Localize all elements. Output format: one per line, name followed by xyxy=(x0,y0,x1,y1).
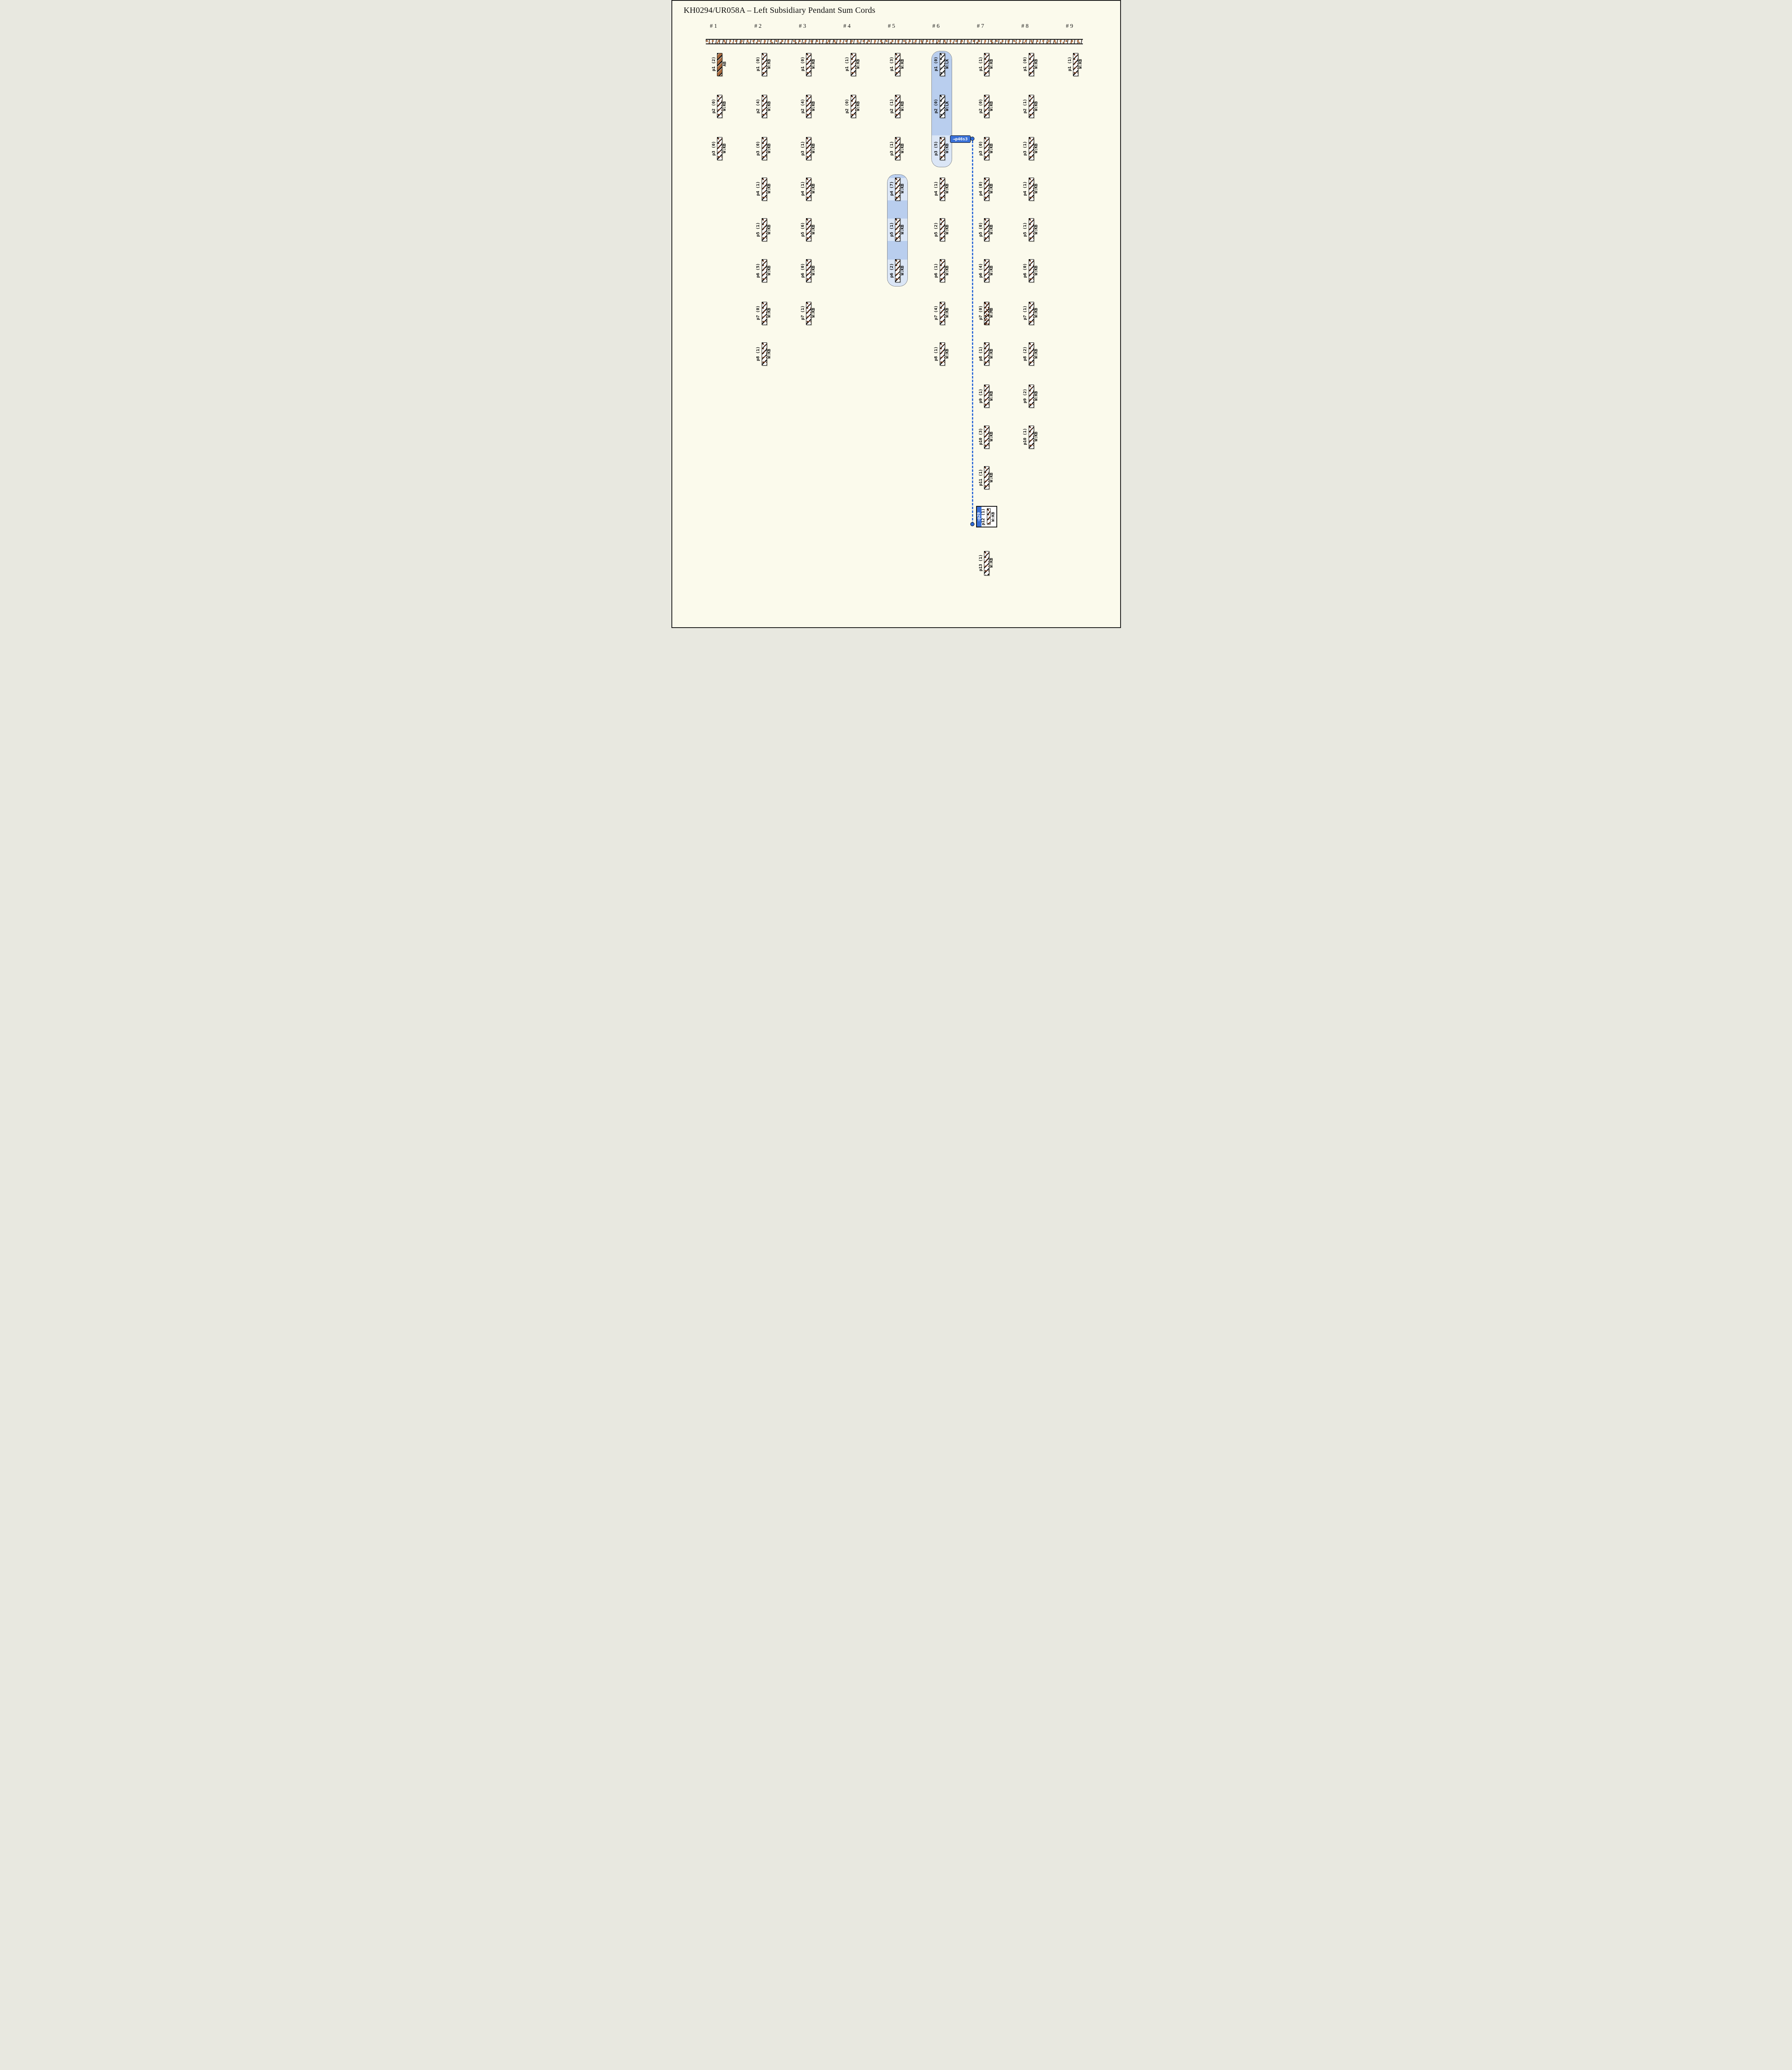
pendant-id-label-text: p8 (1) xyxy=(979,347,983,361)
pendant-color-label: W:KB xyxy=(989,463,995,492)
pendant-id-label: p4 (0) xyxy=(978,174,984,203)
pendant-color-label: W:KB xyxy=(856,50,861,79)
pendant-color-label: W:KB xyxy=(767,215,772,244)
pendant-color-label-text: W:LK xyxy=(945,101,950,111)
pendant-color-label: W:KB xyxy=(989,215,995,244)
pendant-color-label-text: W:KB xyxy=(1034,184,1039,193)
pendant-color-label-text: W:KB xyxy=(990,184,994,193)
pendant-color-label-text: W:KB xyxy=(1034,59,1039,69)
pendant-color-label: W:KB xyxy=(1078,50,1084,79)
pendant-id-label-text: p1 (0) xyxy=(756,57,760,71)
pendant-color-label-text: W:LK xyxy=(945,59,950,69)
pendant-color-label-text: W:KB xyxy=(812,184,816,193)
pendant-color-label-text: W:KB xyxy=(901,59,905,69)
pendant-color-label: W:KB xyxy=(989,549,995,578)
pendant-color-label: W:KB xyxy=(945,339,950,368)
pendant-color-label-text: W:KB xyxy=(812,265,816,275)
pendant-id-label-text: p8 (2) xyxy=(1023,347,1027,361)
pendant-color-label-text: W:KB xyxy=(1079,59,1083,69)
pendant-color-label-text: W:KB xyxy=(1034,265,1039,275)
pendant-color-label-text: W:KB xyxy=(991,512,996,521)
pendant-id-label-text: p4 (0) xyxy=(979,181,983,196)
pendant-color-label: W:KB xyxy=(1034,215,1039,244)
pendant-id-label-text: p6 (1) xyxy=(934,263,938,278)
pendant-id-label-text: p1 (1) xyxy=(1068,57,1072,71)
pendant-color-label-text: W:KB xyxy=(945,184,950,193)
pendant-color-label: W:KB xyxy=(945,215,950,244)
pendant-id-label: p1 (0) xyxy=(933,50,939,79)
pendant-id-label: p2 (1) xyxy=(889,91,895,120)
pendant-color-label-text: W:KB xyxy=(990,143,994,153)
group-header-4: # 4 xyxy=(843,23,851,30)
pendant-id-label-text: p2 (1) xyxy=(1023,99,1027,113)
pendant-id-label: p6 (0) xyxy=(800,256,806,285)
pendant-id-label: p4 (1) xyxy=(933,174,939,203)
pendant-id-label: p7 (4) xyxy=(933,298,939,327)
pendant-color-label: W:KB xyxy=(1034,381,1039,410)
pendant-color-label: W:KB xyxy=(1034,422,1039,451)
group-header-6: # 6 xyxy=(932,23,940,30)
pendant-id-label: p3 (1) xyxy=(800,134,806,163)
pendant-color-label-text: W:KB xyxy=(990,349,994,358)
pendant-color-label-text: W:KB xyxy=(723,101,727,111)
pendant-color-label: W:LK xyxy=(945,91,950,120)
pendant-color-label-text: W:KB xyxy=(767,308,772,318)
pendant-color-label: W:KB xyxy=(767,256,772,285)
pendant-color-label: W:KB xyxy=(945,256,950,285)
pendant-color-label: W:LK xyxy=(945,50,950,79)
pendant-id-label-text: p10 (3) xyxy=(979,428,983,445)
pendant-color-label-text: W:KB xyxy=(990,224,994,234)
pendant-id-label: p5 (1) xyxy=(889,215,895,244)
pendant-id-label: p8 (2) xyxy=(1022,339,1028,368)
pendant-color-label-text: W:KB xyxy=(990,558,994,568)
pendant-color-label: W:KB xyxy=(1034,298,1039,327)
group-header-1: # 1 xyxy=(710,23,717,30)
pendant-id-label: p4 (1) xyxy=(1022,174,1028,203)
pendant-cord xyxy=(987,508,991,525)
pendant-id-label: p3 (1) xyxy=(889,134,895,163)
pendant-id-label: p10 (1) xyxy=(1022,422,1028,451)
pendant-id-label: p1 (3) xyxy=(889,50,895,79)
pendant-color-label: W:KB xyxy=(767,91,772,120)
pendant-id-label-text: p5 (1) xyxy=(1023,222,1027,237)
pendant-id-label: p9 (2) xyxy=(1022,381,1028,410)
pendant-id-label: p2 (1) xyxy=(1022,91,1028,120)
pendant-color-label: W:KB xyxy=(900,256,906,285)
pendant-id-label: p2 (0) xyxy=(844,91,850,120)
pendant-color-label: W:KB xyxy=(767,134,772,163)
pendant-id-label-text: p13 (1) xyxy=(979,554,983,571)
pendant-id-label: p7 (0) xyxy=(755,298,761,327)
pendant-id-label: p4 (7) xyxy=(889,174,895,203)
pendant-id-label: p1 (0) xyxy=(1022,50,1028,79)
pendant-id-label: p7 (0) xyxy=(978,298,984,327)
pendant-id-label-text: p3 (0) xyxy=(756,141,760,156)
pendant-color-label: W:KB xyxy=(945,134,950,163)
pendant-id-label-text: p7 (1) xyxy=(1023,306,1027,320)
pendant-color-label-text: W:KB xyxy=(990,472,994,482)
pendant-id-label-text: p1 (3) xyxy=(890,57,894,71)
pendant-id-label-text: p5 (0) xyxy=(979,222,983,237)
pendant-color-label: W:KB xyxy=(900,50,906,79)
pendant-id-label: p8 (1) xyxy=(755,339,761,368)
pendant-color-label: W:KB xyxy=(989,91,995,120)
pendant-color-label: W:KB xyxy=(989,134,995,163)
pendant-id-label-text: p7 (1) xyxy=(801,306,805,320)
group-header-5: # 5 xyxy=(888,23,895,30)
pendant-color-label-text: W:KB xyxy=(1034,101,1039,111)
pendant-id-label-text: p6 (0) xyxy=(1023,263,1027,278)
pendant-id-label-text: p1 (0) xyxy=(801,57,805,71)
pendant-color-label: W:KB xyxy=(989,381,995,410)
pendant-color-label-text: W:KB xyxy=(767,265,772,275)
pendant-color-label: W:KB xyxy=(722,91,728,120)
pendant-color-label-text: W:KB xyxy=(901,265,905,275)
pendant-id-label-text: p9 (2) xyxy=(1023,389,1027,403)
pendant-color-label-text: W:KB xyxy=(1034,143,1039,153)
pendant-color-label: W:KB xyxy=(989,422,995,451)
pendant-color-label: W:KB xyxy=(811,256,817,285)
pendant-color-label-text: W:KB xyxy=(1034,349,1039,358)
pendant-id-label: p5 (2) xyxy=(933,215,939,244)
pendant-id-label-text: p2 (0) xyxy=(712,99,716,113)
group-header-8: # 8 xyxy=(1021,23,1029,30)
pendant-id-label: p9 (1) xyxy=(978,381,984,410)
pendant-id-label: p6 (4) xyxy=(978,256,984,285)
pendant-color-label-text: W:KB xyxy=(812,143,816,153)
pendant-color-label: W:KB xyxy=(811,50,817,79)
pendant-id-label: p3 (5) xyxy=(933,134,939,163)
pendant-id-label-text: p1 (1) xyxy=(845,57,849,71)
pendant-id-label-text: p7 (4) xyxy=(934,306,938,320)
pendant-color-label-text: W:KB xyxy=(901,224,905,234)
pendant-id-label-text: p1 (0) xyxy=(934,57,938,71)
pendant-color-label-text: W:KB xyxy=(901,184,905,193)
link-label-p46s3: →p46s3 xyxy=(950,135,971,143)
pendant-color-label: W:MB xyxy=(989,298,995,327)
pendant-id-label-text: p5 (1) xyxy=(890,222,894,237)
pendant-color-label: W:KB xyxy=(900,91,906,120)
pendant-id-label: p2 (0) xyxy=(978,91,984,120)
pendant-id-label-text: p3 (0) xyxy=(979,141,983,156)
pendant-color-label-text: W:KB xyxy=(945,143,950,153)
pendant-id-label: p2 (0) xyxy=(711,91,717,120)
pendant-color-label: W:KB xyxy=(811,298,817,327)
pendant-id-label-text: p6 (2) xyxy=(890,263,894,278)
pendant-id-label: p8 (1) xyxy=(978,339,984,368)
pendant-id-label-text: p2 (1) xyxy=(890,99,894,113)
pendant-color-label-text: W:KB xyxy=(990,432,994,441)
pendant-color-label-text: W:KB xyxy=(856,59,861,69)
pendant-id-label-text: p5 (2) xyxy=(934,222,938,237)
pendant-color-label-text: W:KB xyxy=(1034,308,1039,318)
pendant-id-label: p3 (0) xyxy=(755,134,761,163)
pendant-id-label-text: p7 (0) xyxy=(756,306,760,320)
pendant-color-label-text: W:KB xyxy=(812,224,816,234)
pendant-id-label-text: p8 (1) xyxy=(756,347,760,361)
pendant-id-label: p3 (0) xyxy=(978,134,984,163)
pendant-id-label-text: p4 (1) xyxy=(756,181,760,196)
pendant-id-label-text: p4 (1) xyxy=(1023,181,1027,196)
pendant-id-label-text: p2 (4) xyxy=(756,99,760,113)
pendant-id-label: p5 (1) xyxy=(1022,215,1028,244)
group-header-3: # 3 xyxy=(799,23,806,30)
pendant-id-label: p6 (1) xyxy=(933,256,939,285)
pendant-color-label: W:KB xyxy=(811,134,817,163)
pendant-id-label-text: p4 (1) xyxy=(934,181,938,196)
pendant-color-label: W:KB xyxy=(1034,134,1039,163)
connector-line xyxy=(972,141,973,524)
pendant-color-label: W:KB xyxy=(767,174,772,203)
pendant-id-label-text: p6 (4) xyxy=(979,263,983,278)
pendant-id-label: p4 (1) xyxy=(800,174,806,203)
pendant-color-label: W:KB xyxy=(989,339,995,368)
pendant-color-label: W:KB xyxy=(989,50,995,79)
pendant-color-label-text: W:KB xyxy=(945,308,950,318)
pendant-id-label: p3 (0) xyxy=(711,134,717,163)
pendant-id-label: p8 (1) xyxy=(933,339,939,368)
pendant-id-label: p1 (1) xyxy=(978,50,984,79)
pendant-color-label-text: W:KB xyxy=(723,143,727,153)
pendant-color-label-text: W:KB xyxy=(945,349,950,358)
pendant-id-label-text: p6 (0) xyxy=(801,263,805,278)
pendant-box-p12: →p29p12 (1)W:KB xyxy=(976,506,997,527)
pendant-color-label: W:KB xyxy=(900,174,906,203)
pendant-id-label: p2 (4) xyxy=(755,91,761,120)
khipu-diagram-page: KH0294/UR058A – Left Subsidiary Pendant … xyxy=(671,0,1121,628)
pendant-color-label: AB xyxy=(722,50,728,79)
pendant-id-label-text: p9 (1) xyxy=(979,389,983,403)
pendant-color-label: W:KB xyxy=(767,339,772,368)
pendant-color-label-text: W:KB xyxy=(945,265,950,275)
pendant-id-label-text: p3 (5) xyxy=(934,141,938,156)
pendant-color-label-text: W:KB xyxy=(812,59,816,69)
pendant-id-label-text: p1 (0) xyxy=(1023,57,1027,71)
pendant-color-label: W:KB xyxy=(1034,50,1039,79)
pendant-color-label: W:KB xyxy=(1034,91,1039,120)
pendant-color-label-text: W:KB xyxy=(990,59,994,69)
pendant-color-label: W:KB xyxy=(722,134,728,163)
pendant-id-label: p3 (1) xyxy=(1022,134,1028,163)
pendant-id-label-text: p2 (4) xyxy=(801,99,805,113)
pendant-color-label-text: W:KB xyxy=(767,59,772,69)
pendant-id-label: p1 (0) xyxy=(800,50,806,79)
pendant-color-label-text: W:KB xyxy=(945,224,950,234)
pendant-color-label-text: W:KB xyxy=(767,101,772,111)
pendant-color-label-text: W:KB xyxy=(812,308,816,318)
pendant-id-label: p6 (2) xyxy=(889,256,895,285)
pendant-color-label: W:KB xyxy=(811,91,817,120)
pendant-color-label-text: W:KB xyxy=(767,143,772,153)
pendant-id-label-text: p1 (2) xyxy=(712,57,716,71)
pendant-color-label-text: AB xyxy=(723,62,727,67)
main-cord xyxy=(706,39,1083,44)
pendant-color-label-text: W:KB xyxy=(767,184,772,193)
pendant-id-label: p1 (1) xyxy=(1067,50,1073,79)
pendant-id-label-text: p2 (0) xyxy=(845,99,849,113)
pendant-id-label: p6 (0) xyxy=(1022,256,1028,285)
pendant-id-label: p2 (0) xyxy=(933,91,939,120)
pendant-color-label: W:KB xyxy=(989,256,995,285)
pendant-id-label: p1 (1) xyxy=(844,50,850,79)
page-title: KH0294/UR058A – Left Subsidiary Pendant … xyxy=(684,6,876,15)
pendant-color-label-text: W:KB xyxy=(990,391,994,400)
pendant-id-label: p1 (0) xyxy=(755,50,761,79)
pendant-color-label-text: W:KB xyxy=(856,101,861,111)
group-header-9: # 9 xyxy=(1066,23,1073,30)
pendant-color-label-text: W:KB xyxy=(1034,432,1039,441)
pendant-id-label-text: p8 (1) xyxy=(934,347,938,361)
pendant-id-label: p5 (6) xyxy=(800,215,806,244)
pendant-color-label: W:KB xyxy=(1034,174,1039,203)
pendant-id-label-text: p6 (5) xyxy=(756,263,760,278)
connector-node-bottom xyxy=(970,522,974,526)
pendant-id-label: p1 (2) xyxy=(711,50,717,79)
pendant-color-label-text: W:KB xyxy=(1034,224,1039,234)
pendant-id-label: p5 (0) xyxy=(978,215,984,244)
pendant-color-label-text: W:KB xyxy=(1034,391,1039,400)
pendant-color-label: W:KB xyxy=(900,215,906,244)
pendant-id-label-text: p3 (1) xyxy=(890,141,894,156)
pendant-id-label: p4 (1) xyxy=(755,174,761,203)
pendant-id-label-text: p3 (1) xyxy=(1023,141,1027,156)
pendant-id-label-text: p11 (1) xyxy=(979,469,983,486)
pendant-color-label-text: W:KB xyxy=(767,224,772,234)
pendant-id-label: p2 (4) xyxy=(800,91,806,120)
pendant-id-label: p10 (3) xyxy=(978,422,984,451)
pendant-id-label-text: p1 (1) xyxy=(979,57,983,71)
pendant-id-label-text: p2 (0) xyxy=(979,99,983,113)
pendant-id-label: p7 (1) xyxy=(800,298,806,327)
pendant-color-label-text: W:KB xyxy=(901,143,905,153)
pendant-color-label: W:KB xyxy=(900,134,906,163)
pendant-id-label-text: p12 (1) xyxy=(981,508,986,525)
pendant-id-label: p11 (1) xyxy=(978,463,984,492)
pendant-color-label: W:KB xyxy=(991,508,996,526)
pendant-id-label-text: p5 (6) xyxy=(801,222,805,237)
pendant-color-label: W:KB xyxy=(856,91,861,120)
pendant-id-label-text: p4 (1) xyxy=(801,181,805,196)
pendant-color-label: W:KB xyxy=(767,50,772,79)
group-header-7: # 7 xyxy=(977,23,984,30)
pendant-id-label-text: p4 (7) xyxy=(890,181,894,196)
pendant-id-label: p7 (1) xyxy=(1022,298,1028,327)
pendant-id-label-text: p2 (0) xyxy=(934,99,938,113)
pendant-color-label: W:KB xyxy=(767,298,772,327)
pendant-color-label-text: W:MB xyxy=(990,308,994,318)
pendant-id-label-text: p10 (1) xyxy=(1023,428,1027,445)
pendant-id-label-text: p5 (1) xyxy=(756,222,760,237)
connector-node-top xyxy=(970,137,974,141)
group-header-2: # 2 xyxy=(754,23,762,30)
pendant-id-label: p12 (1) xyxy=(981,508,986,526)
pendant-color-label: W:KB xyxy=(945,174,950,203)
pendant-color-label-text: W:KB xyxy=(767,349,772,358)
pendant-color-label: W:KB xyxy=(1034,256,1039,285)
pendant-color-label-text: W:KB xyxy=(901,101,905,111)
pendant-color-label: W:KB xyxy=(945,298,950,327)
pendant-id-label-text: p7 (0) xyxy=(979,306,983,320)
pendant-color-label: W:KB xyxy=(989,174,995,203)
pendant-color-label: W:KB xyxy=(811,174,817,203)
pendant-color-label: W:KB xyxy=(1034,339,1039,368)
pendant-id-label: p13 (1) xyxy=(978,549,984,578)
pendant-id-label: p6 (5) xyxy=(755,256,761,285)
link-label-p46s3-text: →p46s3 xyxy=(953,137,967,142)
pendant-color-label-text: W:KB xyxy=(990,265,994,275)
pendant-color-label-text: W:KB xyxy=(990,101,994,111)
pendant-color-label-text: W:KB xyxy=(812,101,816,111)
pendant-id-label: p5 (1) xyxy=(755,215,761,244)
pendant-color-label: W:KB xyxy=(811,215,817,244)
pendant-id-label-text: p3 (0) xyxy=(712,141,716,156)
pendant-id-label-text: p3 (1) xyxy=(801,141,805,156)
